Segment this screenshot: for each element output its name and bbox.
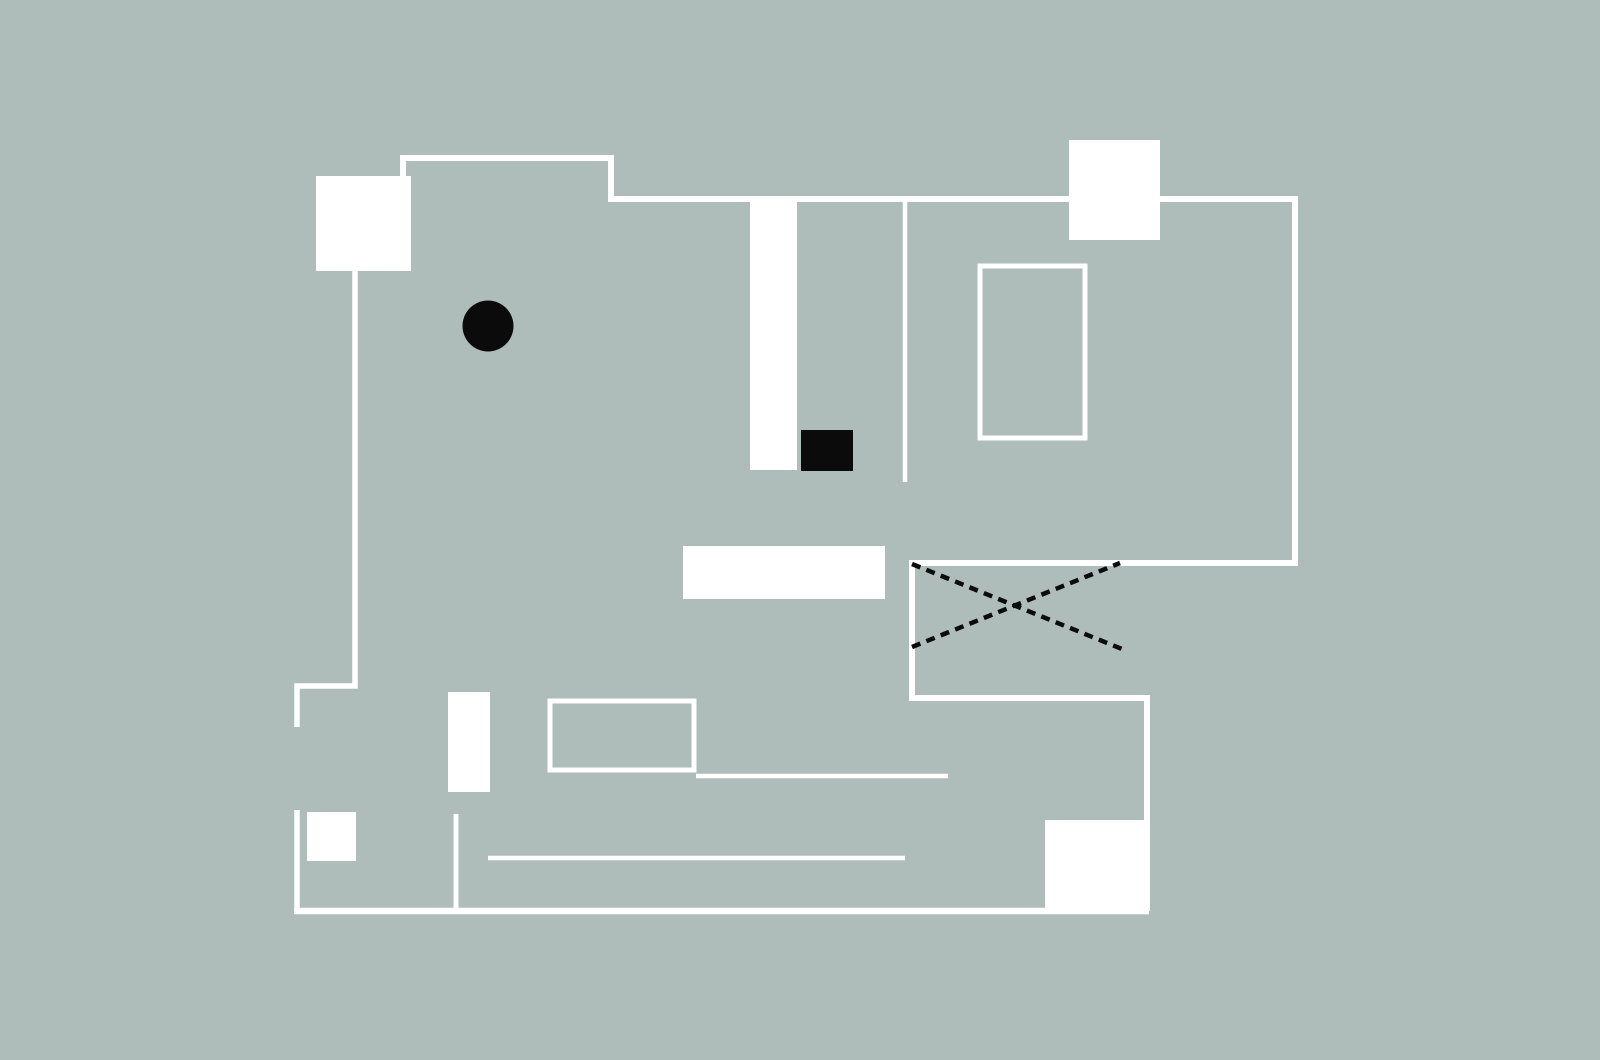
wall-main-outline <box>403 158 1295 822</box>
marker-block <box>801 430 853 471</box>
block-top-left <box>316 176 411 271</box>
room-outline-bottom <box>550 701 694 770</box>
floor-plan-svg <box>0 0 1600 1060</box>
wall-left-upper <box>297 271 355 727</box>
room-outline-right <box>980 266 1085 438</box>
marker-dot <box>463 301 514 352</box>
block-square-lower-left <box>307 812 356 861</box>
block-bar-center <box>683 546 885 599</box>
block-square-bottom-right <box>1045 820 1150 911</box>
block-column-center <box>750 200 797 470</box>
block-top-right <box>1069 140 1160 240</box>
block-bar-lower-left <box>448 692 490 792</box>
floor-plan-canvas <box>0 0 1600 1060</box>
